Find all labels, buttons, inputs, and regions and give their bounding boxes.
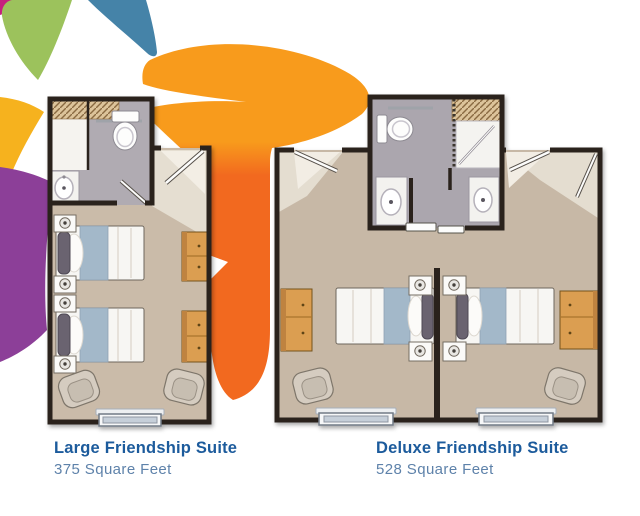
dresser bbox=[182, 311, 208, 362]
nightstand bbox=[443, 342, 466, 361]
window bbox=[476, 408, 556, 425]
window bbox=[96, 409, 164, 426]
large-closet-shelf-hatch bbox=[51, 100, 119, 119]
petal-purple-icon bbox=[0, 167, 53, 362]
deluxe-closet-shelf-hatch bbox=[452, 99, 501, 121]
dresser bbox=[560, 291, 598, 349]
nightstand bbox=[409, 342, 432, 361]
dresser bbox=[281, 289, 312, 351]
deluxe-suite-caption: Deluxe Friendship Suite 528 Square Feet bbox=[376, 439, 569, 478]
shower-icon bbox=[456, 121, 501, 168]
nightstand bbox=[54, 295, 76, 312]
window bbox=[316, 408, 396, 425]
nightstand bbox=[54, 215, 76, 232]
sink-vanity-icon bbox=[469, 177, 499, 222]
deluxe-suite-title: Deluxe Friendship Suite bbox=[376, 439, 569, 458]
bed bbox=[56, 308, 144, 362]
bed bbox=[336, 288, 434, 344]
bed bbox=[456, 288, 554, 344]
nightstand bbox=[443, 276, 466, 295]
large-suite-caption: Large Friendship Suite 375 Square Feet bbox=[54, 439, 237, 478]
nightstand bbox=[409, 276, 432, 295]
dresser bbox=[182, 232, 208, 281]
bed bbox=[56, 226, 144, 280]
floorplan-poster: Large Friendship Suite 375 Square Feet D… bbox=[0, 0, 640, 516]
petal-green-icon bbox=[2, 0, 72, 80]
sink-vanity-icon bbox=[376, 177, 407, 225]
large-suite-area: 375 Square Feet bbox=[54, 461, 237, 478]
toilet-icon bbox=[377, 115, 413, 143]
petal-teal-icon bbox=[88, 0, 157, 56]
nightstand bbox=[54, 356, 76, 373]
toilet-icon bbox=[112, 111, 139, 150]
deluxe-suite-area: 528 Square Feet bbox=[376, 461, 569, 478]
nightstand bbox=[54, 276, 76, 293]
floorplan-deluxe bbox=[275, 95, 603, 426]
sink-vanity-icon bbox=[51, 171, 79, 202]
large-suite-title: Large Friendship Suite bbox=[54, 439, 237, 458]
